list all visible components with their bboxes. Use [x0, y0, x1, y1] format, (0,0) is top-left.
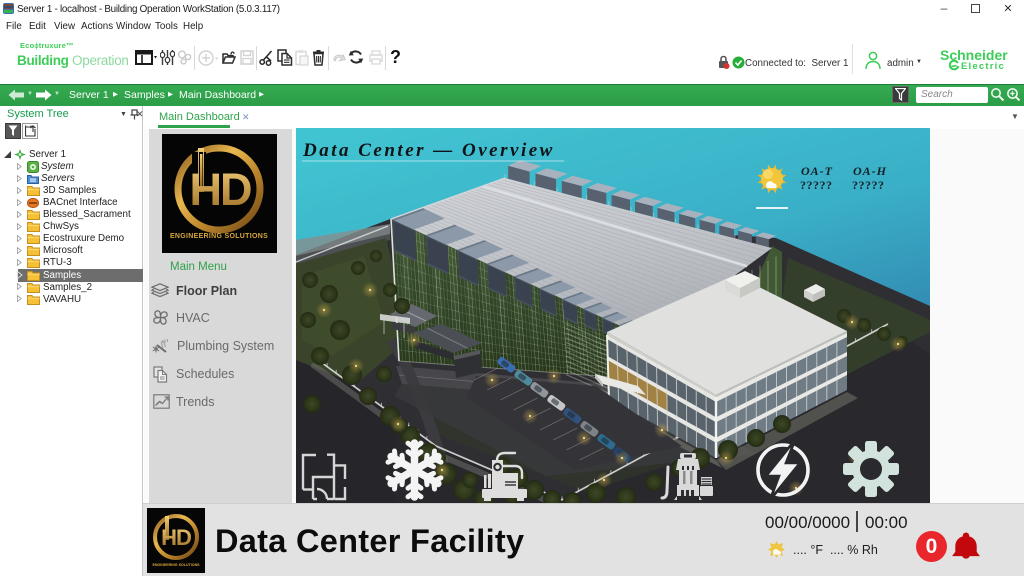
svg-text:OA-H: OA-H	[853, 164, 887, 178]
svg-text:ENGINEERING SOLUTIONS: ENGINEERING SOLUTIONS	[152, 563, 200, 567]
svg-text:HD: HD	[190, 164, 251, 215]
svg-text:HD: HD	[161, 525, 191, 550]
svg-text:Data Center — Overview: Data Center — Overview	[302, 140, 555, 161]
svg-text:?????: ?????	[852, 178, 885, 192]
svg-text:ENGINEERING SOLUTIONS: ENGINEERING SOLUTIONS	[170, 233, 268, 240]
svg-text:?????: ?????	[800, 178, 833, 192]
svg-text:OA-T: OA-T	[801, 164, 833, 178]
